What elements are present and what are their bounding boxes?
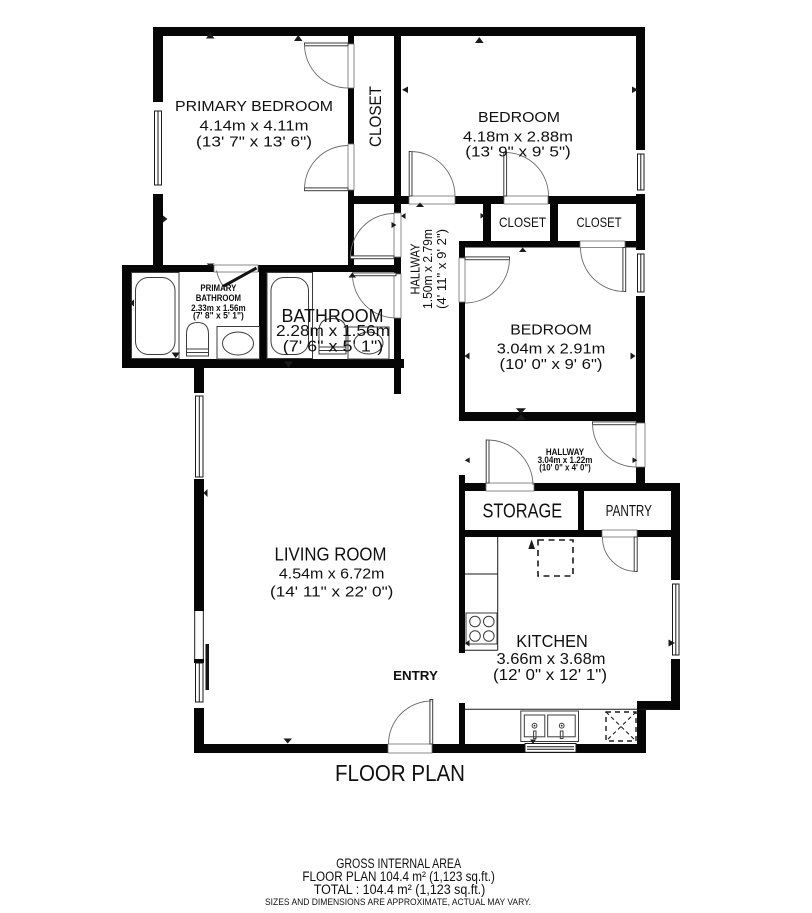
svg-text:(7' 8" x 5' 1"): (7' 8" x 5' 1")	[193, 310, 244, 320]
svg-text:FLOOR PLAN: FLOOR PLAN	[335, 760, 465, 786]
svg-text:2.28m x 1.56m: 2.28m x 1.56m	[276, 323, 390, 340]
svg-text:STORAGE: STORAGE	[482, 501, 562, 523]
svg-text:4.54m x 6.72m: 4.54m x 6.72m	[279, 566, 385, 583]
svg-text:KITCHEN: KITCHEN	[516, 631, 588, 651]
svg-text:(10' 0" x 9' 6"): (10' 0" x 9' 6")	[500, 356, 603, 373]
svg-text:3.66m x 3.68m: 3.66m x 3.68m	[497, 651, 606, 668]
svg-text:BEDROOM: BEDROOM	[510, 321, 592, 338]
svg-text:(13' 9" x 9' 5"): (13' 9" x 9' 5")	[465, 143, 571, 160]
svg-text:BEDROOM: BEDROOM	[478, 109, 560, 126]
svg-text:(10' 0" x 4' 0"): (10' 0" x 4' 0")	[539, 463, 591, 473]
svg-text:TOTAL : 104.4 m² (1,123 sq.ft: TOTAL : 104.4 m² (1,123 sq.ft.)	[314, 882, 486, 897]
svg-text:3.04m x 2.91m: 3.04m x 2.91m	[497, 341, 606, 358]
svg-text:CLOSET: CLOSET	[499, 214, 546, 230]
svg-text:1.50m x 2.79m: 1.50m x 2.79m	[420, 229, 435, 309]
svg-text:PRIMARY BEDROOM: PRIMARY BEDROOM	[175, 98, 333, 115]
svg-text:(4' 11" x 9' 2"): (4' 11" x 9' 2")	[434, 229, 449, 309]
svg-text:LIVING ROOM: LIVING ROOM	[275, 544, 387, 565]
svg-text:PANTRY: PANTRY	[606, 503, 653, 520]
svg-text:PRIMARY: PRIMARY	[200, 283, 236, 293]
svg-text:SIZES AND DIMENSIONS ARE APPRO: SIZES AND DIMENSIONS ARE APPROXIMATE, AC…	[265, 897, 531, 908]
svg-text:4.14m x 4.11m: 4.14m x 4.11m	[200, 118, 309, 135]
svg-text:(12' 0" x 12' 1"): (12' 0" x 12' 1")	[493, 667, 607, 684]
svg-text:CLOSET: CLOSET	[577, 214, 622, 230]
svg-text:BATHROOM: BATHROOM	[196, 293, 241, 303]
svg-text:ENTRY: ENTRY	[393, 668, 438, 683]
svg-text:CLOSET: CLOSET	[367, 86, 385, 147]
svg-text:(7' 6" x 5' 1"): (7' 6" x 5' 1")	[283, 339, 384, 356]
svg-text:(14' 11" x 22' 0"): (14' 11" x 22' 0")	[270, 583, 393, 600]
svg-text:(13' 7" x 13' 6"): (13' 7" x 13' 6")	[196, 133, 312, 150]
